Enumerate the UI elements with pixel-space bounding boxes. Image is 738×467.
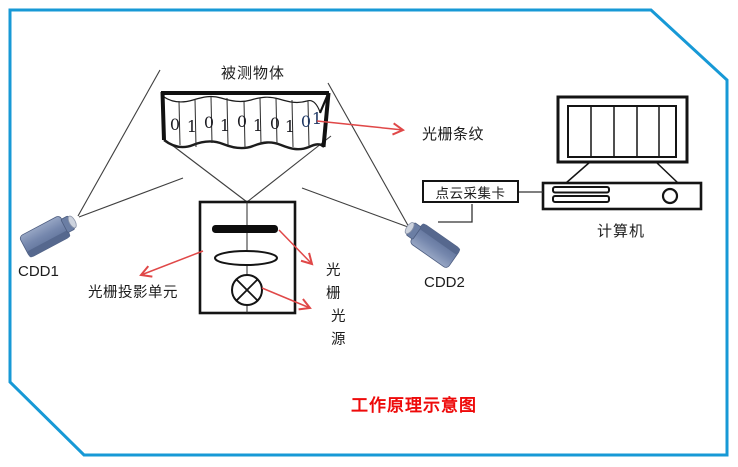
arrow-to-projection-label bbox=[141, 251, 203, 275]
monitor-stand-right bbox=[656, 162, 678, 183]
banner-left-edge bbox=[163, 92, 165, 140]
diagram-canvas: 0 1 0 1 0 1 0 1 0 1 bbox=[0, 0, 738, 467]
cdd2-camera bbox=[400, 217, 460, 269]
grating-bar bbox=[212, 225, 278, 233]
measured-object-banner: 0 1 0 1 0 1 0 1 0 1 bbox=[161, 92, 329, 149]
fringe-digit: 1 bbox=[285, 117, 295, 136]
monitor-screen bbox=[568, 106, 676, 157]
fringe-digit: 0 bbox=[237, 112, 247, 131]
fringe-digit: 1 bbox=[253, 116, 263, 135]
cdd1-camera bbox=[19, 210, 81, 258]
cdd2-label: CDD2 bbox=[424, 274, 465, 291]
point-cloud-card-box: 点云采集卡 bbox=[422, 180, 519, 203]
fringe-digit: 1 bbox=[312, 109, 322, 128]
computer-label: 计算机 bbox=[597, 220, 645, 241]
case-slot-2 bbox=[553, 196, 609, 202]
cdd2-sight-line-upper bbox=[328, 83, 410, 229]
banner-top-wave bbox=[164, 97, 320, 112]
projection-cone-right bbox=[247, 136, 331, 202]
diagram-title: 工作原理示意图 bbox=[351, 391, 477, 416]
cdd1-sight-line-upper bbox=[78, 70, 160, 216]
arrow-to-fringe-label bbox=[317, 121, 403, 130]
cdd2-sight-line-lower bbox=[302, 188, 408, 227]
case-slot-1 bbox=[553, 187, 609, 193]
fringe-digit: 0 bbox=[204, 113, 214, 132]
lens-ellipse bbox=[215, 251, 277, 265]
grating-fringe-label: 光栅条纹 bbox=[422, 123, 484, 144]
cdd1-label: CDD1 bbox=[18, 263, 59, 280]
fringe-digit: 1 bbox=[220, 116, 230, 135]
monitor-stand-left bbox=[566, 162, 590, 183]
measured-object-label: 被测物体 bbox=[221, 62, 285, 83]
power-button bbox=[663, 189, 677, 203]
camera-to-card-wire bbox=[438, 204, 472, 222]
fringe-digit: 0 bbox=[301, 112, 311, 131]
fringe-digits: 0 1 0 1 0 1 0 1 0 1 bbox=[170, 109, 322, 136]
computer bbox=[543, 97, 701, 209]
light-source-label: 光源 bbox=[331, 306, 348, 352]
projection-unit-label: 光栅投影单元 bbox=[88, 281, 178, 302]
point-cloud-card-label: 点云采集卡 bbox=[436, 182, 506, 202]
fringe-digit: 0 bbox=[170, 115, 180, 134]
grating-label: 光栅 bbox=[326, 260, 343, 306]
banner-bottom-wave bbox=[164, 140, 324, 149]
fringe-digit: 0 bbox=[270, 114, 280, 133]
fringe-digit: 1 bbox=[187, 117, 197, 136]
cdd1-sight-line-lower bbox=[79, 178, 183, 217]
